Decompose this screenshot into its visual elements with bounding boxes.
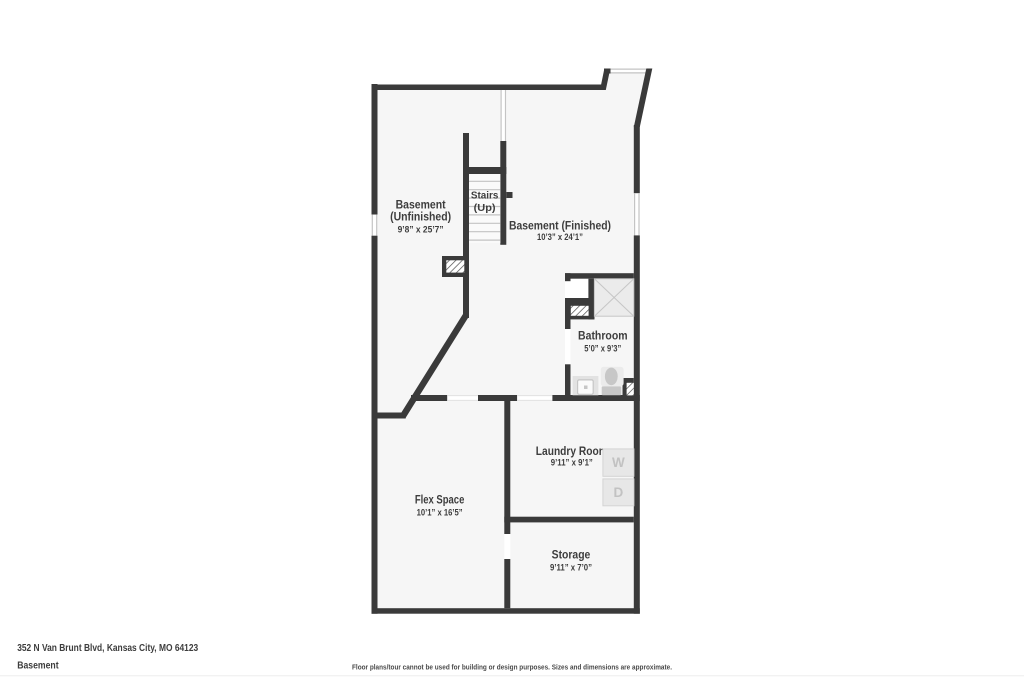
svg-text:Floor plans/tour cannot be use: Floor plans/tour cannot be used for buil…	[352, 663, 672, 672]
svg-text:(Unfinished): (Unfinished)	[390, 212, 451, 224]
svg-text:9’11” x 7’0”: 9’11” x 7’0”	[550, 563, 592, 573]
svg-text:10’1” x 16’5”: 10’1” x 16’5”	[417, 508, 463, 518]
svg-text:Flex Space: Flex Space	[415, 495, 465, 507]
svg-text:10’3” x 24’1”: 10’3” x 24’1”	[537, 232, 583, 242]
svg-text:9’11” x 9’1”: 9’11” x 9’1”	[551, 458, 593, 468]
svg-text:9’8” x 25’7”: 9’8” x 25’7”	[398, 225, 444, 235]
svg-text:Bathroom: Bathroom	[578, 331, 628, 343]
svg-text:Basement: Basement	[396, 200, 446, 212]
svg-text:352 N Van Brunt Blvd, Kansas C: 352 N Van Brunt Blvd, Kansas City, MO 64…	[17, 643, 198, 654]
svg-text:Basement: Basement	[17, 660, 59, 672]
svg-text:W: W	[612, 455, 625, 470]
svg-text:Laundry Room: Laundry Room	[536, 446, 608, 458]
svg-text:D: D	[614, 485, 624, 500]
svg-text:Storage: Storage	[552, 550, 591, 562]
svg-text:Basement (Finished): Basement (Finished)	[509, 221, 611, 233]
svg-text:5’0” x 9’3”: 5’0” x 9’3”	[584, 344, 621, 354]
svg-text:(Up): (Up)	[474, 202, 496, 214]
svg-text:Stairs: Stairs	[471, 190, 499, 202]
